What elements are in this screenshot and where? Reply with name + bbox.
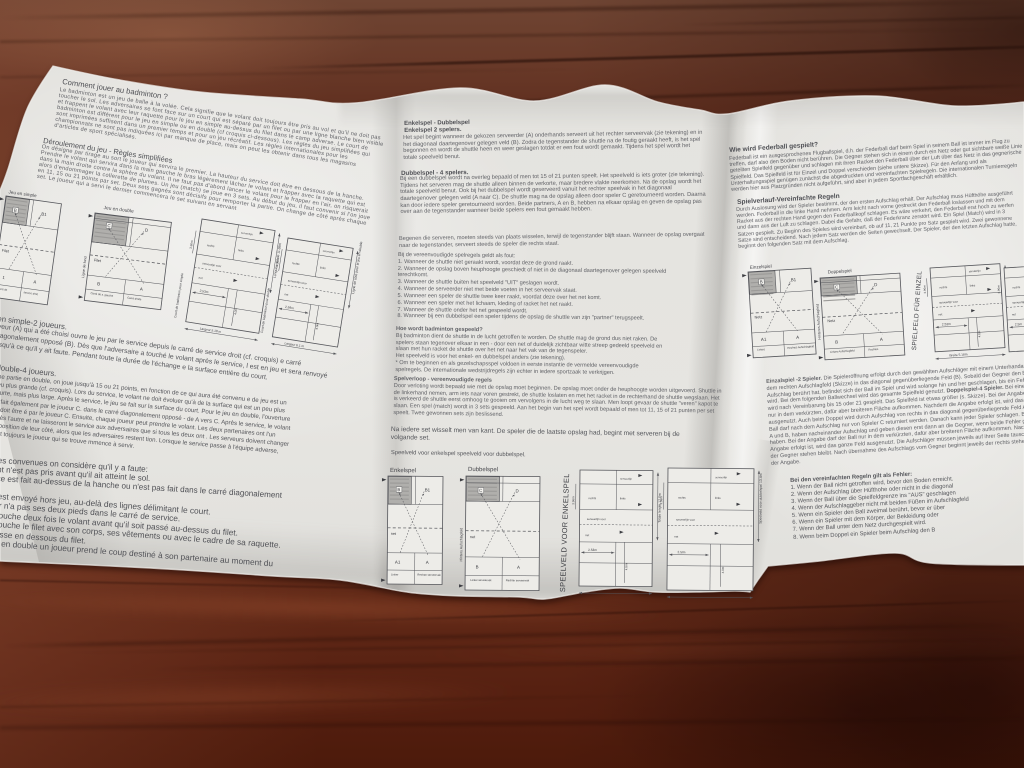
svg-text:B: B [397,487,400,492]
svg-text:Dubbelspel: Dubbelspel [468,467,498,473]
svg-text:B: B [835,339,838,344]
svg-text:4.0m: 4.0m [624,563,628,570]
svg-text:3.96m: 3.96m [923,285,928,294]
svg-text:C: C [479,488,482,493]
svg-text:net: net [585,533,589,537]
svg-text:rechts: rechts [589,496,597,500]
svg-text:3.96m: 3.96m [997,285,1002,294]
svg-text:A: A [880,337,883,342]
svg-text:A1: A1 [761,337,767,342]
svg-text:B: B [760,279,763,284]
svg-text:Enkelspel: Enkelspel [390,468,416,474]
svg-text:A: A [517,565,520,570]
svg-text:3.96m: 3.96m [571,496,575,505]
svg-text:serveerlijn: serveerlijn [969,269,982,274]
svg-text:links: links [620,496,626,500]
svg-text:Rechtes: Rechtes [868,347,879,352]
svg-text:B1: B1 [791,277,797,282]
svg-text:A: A [796,335,799,340]
svg-text:serveerlijn voor: serveerlijn voor [587,517,606,521]
svg-text:serveerlijn: serveerlijn [620,477,632,481]
svg-text:Hinters Aufschlagfeld: Hinters Aufschlagfeld [459,528,463,562]
svg-text:Breite 5.18m: Breite 5.18m [949,352,968,357]
svg-text:Einzelspiel: Einzelspiel [750,264,772,270]
svg-text:D: D [874,282,877,287]
svg-text:Linker serveervak: Linker serveervak [470,578,492,582]
svg-text:Netz: Netz [754,315,762,319]
svg-text:links: links [970,283,976,287]
svg-text:serveerlijn voor: serveerlijn voor [676,518,695,522]
svg-text:Linker: Linker [391,572,398,576]
svg-text:B1: B1 [425,487,431,492]
svg-text:serveerlijn voor: serveerlijn voor [1012,299,1024,304]
svg-text:rechts: rechts [1012,285,1020,289]
svg-text:Jeu en double: Jeu en double [103,205,134,215]
svg-text:Ligne de fond: Ligne de fond [81,256,88,278]
svg-text:A1: A1 [395,560,401,565]
svg-text:4.0m: 4.0m [977,330,981,337]
svg-text:Doppelspiel: Doppelspiel [827,268,851,274]
svg-text:Linkes: Linkes [757,347,766,352]
svg-text:C: C [835,285,838,290]
svg-text:links: links [715,496,721,500]
svg-text:net: net [674,535,678,539]
svg-text:2.5m: 2.5m [1015,322,1023,326]
svg-text:D: D [145,228,149,233]
svg-text:serveerlijn: serveerlijn [715,475,727,479]
svg-text:Rechter serveervak: Rechter serveervak [506,578,530,582]
svg-text:Court de badminton pour simple: Court de badminton pour simple [173,273,184,319]
svg-text:rechts: rechts [939,285,947,289]
svg-text:D: D [515,488,518,493]
svg-text:2.5lm: 2.5lm [678,550,686,554]
svg-text:4.0m: 4.0m [721,566,725,573]
svg-text:C: C [107,223,111,228]
svg-text:2.53m: 2.53m [588,548,597,552]
svg-text:Speelveld voor dubbelspel 13.4: Speelveld voor dubbelspel 13.4m [759,473,763,523]
svg-text:3.96m: 3.96m [659,496,663,505]
svg-text:2.53m: 2.53m [942,322,951,327]
svg-text:Netz: Netz [827,319,835,323]
svg-text:Hinteres Aufschlagfeld: Hinteres Aufschlagfeld [816,304,822,340]
svg-text:Rechter serveervak: Rechter serveervak [417,573,441,577]
svg-text:rechts: rechts [678,496,686,500]
svg-text:A: A [426,560,429,565]
svg-text:B: B [476,564,479,569]
svg-text:net: net [938,312,942,316]
svg-text:net: net [1012,312,1016,316]
